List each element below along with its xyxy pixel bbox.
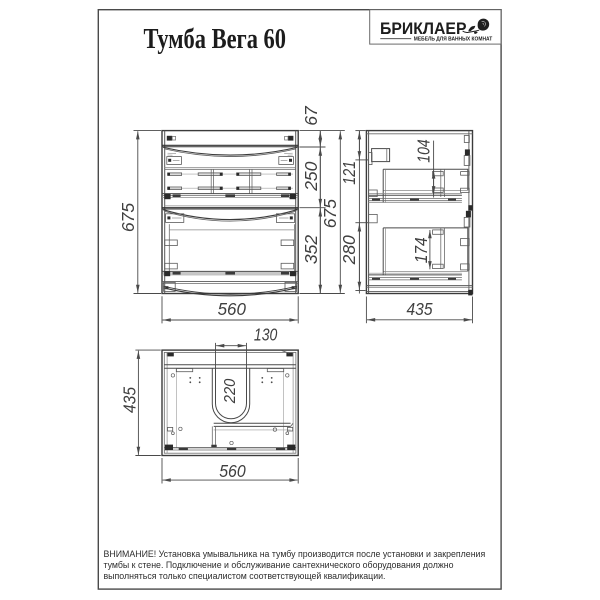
svg-text:560: 560: [218, 299, 247, 319]
svg-text:250: 250: [301, 161, 321, 191]
svg-text:435: 435: [120, 387, 140, 413]
svg-text:Тумба Вега 60: Тумба Вега 60: [144, 23, 287, 55]
svg-text:435: 435: [407, 299, 433, 319]
svg-text:121: 121: [339, 161, 359, 185]
svg-text:280: 280: [339, 235, 359, 265]
svg-text:174: 174: [411, 237, 431, 263]
svg-text:выполняться только специалисто: выполняться только специалистом соответс…: [104, 571, 386, 581]
svg-text:БРИКЛАЕР: БРИКЛАЕР: [380, 19, 467, 38]
svg-text:130: 130: [254, 325, 278, 345]
svg-text:104: 104: [414, 139, 434, 163]
svg-text:220: 220: [222, 378, 239, 404]
svg-text:675: 675: [320, 199, 340, 228]
svg-text:675: 675: [118, 203, 138, 232]
svg-text:67: 67: [301, 105, 321, 126]
svg-text:352: 352: [301, 235, 321, 264]
svg-text:тумбы к стене. Подключение и о: тумбы к стене. Подключение и обслуживани…: [104, 560, 454, 570]
svg-text:ВНИМАНИЕ! Установка умывальник: ВНИМАНИЕ! Установка умывальника на тумбу…: [104, 549, 486, 559]
svg-text:560: 560: [219, 461, 246, 481]
svg-text:МЕБЕЛЬ ДЛЯ ВАННЫХ КОМНАТ: МЕБЕЛЬ ДЛЯ ВАННЫХ КОМНАТ: [414, 37, 493, 43]
